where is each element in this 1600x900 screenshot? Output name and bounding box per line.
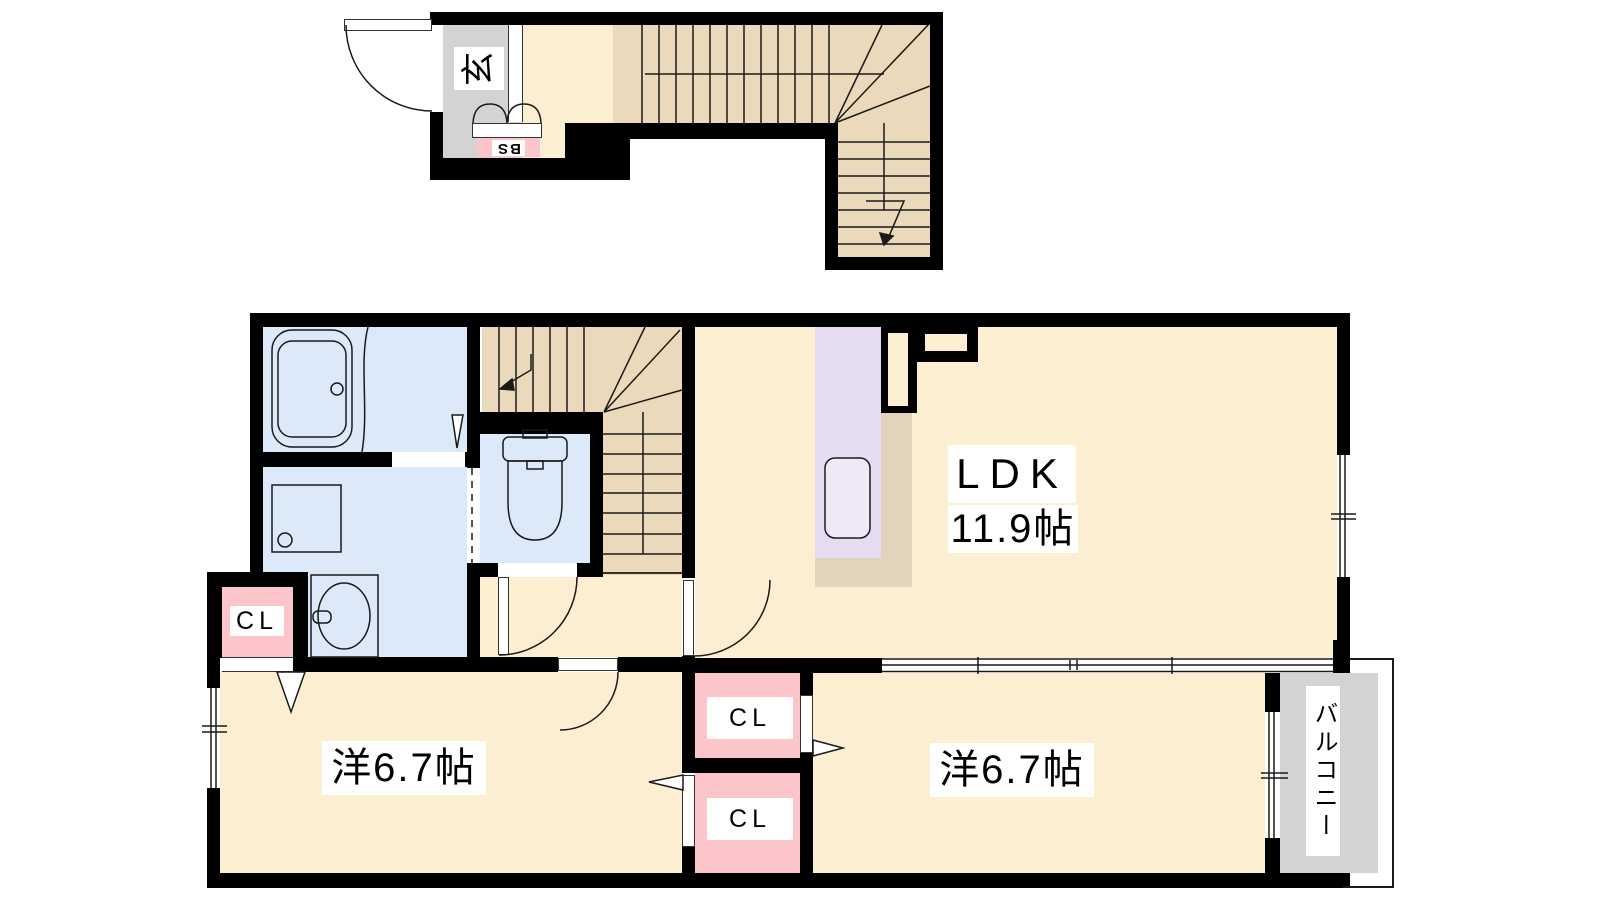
closet-middle-top-label: CL: [707, 697, 793, 739]
ldk-label: LDK: [948, 445, 1076, 503]
entrance-label: 玄: [454, 47, 504, 90]
closet-left-label: CL: [230, 606, 284, 636]
stairs-1f-arrow: [866, 201, 904, 245]
partition-lines: [882, 657, 1333, 674]
bedroom-left-label: 洋6.7帖: [322, 741, 486, 795]
washbasin: [311, 575, 378, 657]
stairs-1f-treads: [642, 24, 930, 244]
balcony-label: バルコニー: [1306, 686, 1340, 856]
toilet-door-arc: [499, 577, 577, 655]
shoe-box-label-band: SB: [477, 138, 540, 157]
bedroom-right-label: 洋6.7帖: [930, 743, 1094, 797]
bathtub: [272, 327, 368, 452]
shoe-box-door-arcs: [473, 104, 541, 123]
floor-plan: 玄 SB LDK 11.9帖 洋6.7帖 洋6.7帖 CL CL CL バルコニ…: [0, 0, 1600, 900]
toilet: [503, 430, 567, 540]
bedroom-left-door-arc: [560, 672, 618, 730]
shoe-box-label: SB: [492, 140, 525, 156]
washing-machine: [272, 485, 341, 552]
entrance-door-arc: [346, 25, 432, 111]
ldk-door-arc: [694, 580, 770, 656]
stairs-2f-treads: [499, 327, 682, 573]
plan-linework: [0, 0, 1600, 900]
closet-middle-bottom-label: CL: [707, 798, 793, 840]
balcony-outline: [1343, 659, 1393, 887]
entrance-label-text: 玄: [462, 52, 496, 86]
kitchen-sink: [825, 458, 870, 538]
ldk-size-label: 11.9帖: [948, 505, 1078, 553]
